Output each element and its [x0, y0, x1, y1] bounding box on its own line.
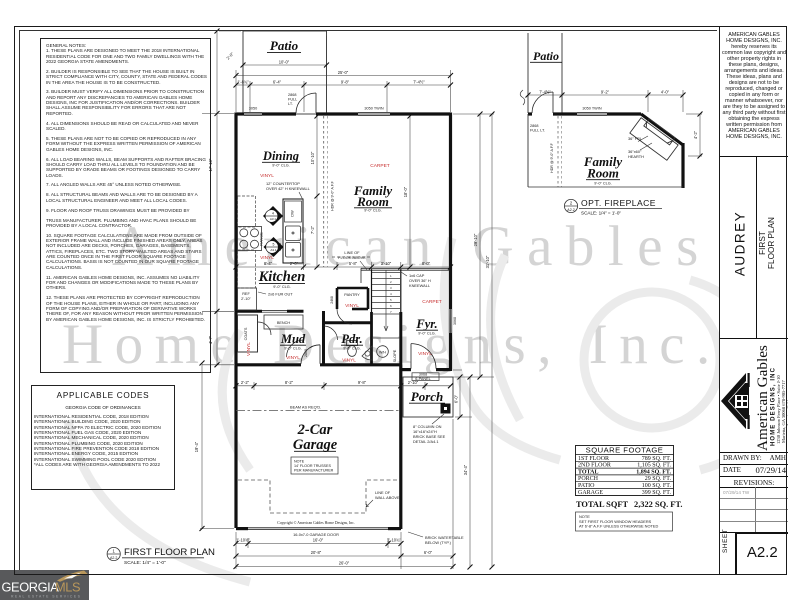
- svg-text:GEORGIA: GEORGIA: [2, 580, 60, 595]
- svg-text:MLS: MLS: [55, 580, 80, 595]
- svg-text:REAL ESTATE SERVICES: REAL ESTATE SERVICES: [11, 595, 81, 599]
